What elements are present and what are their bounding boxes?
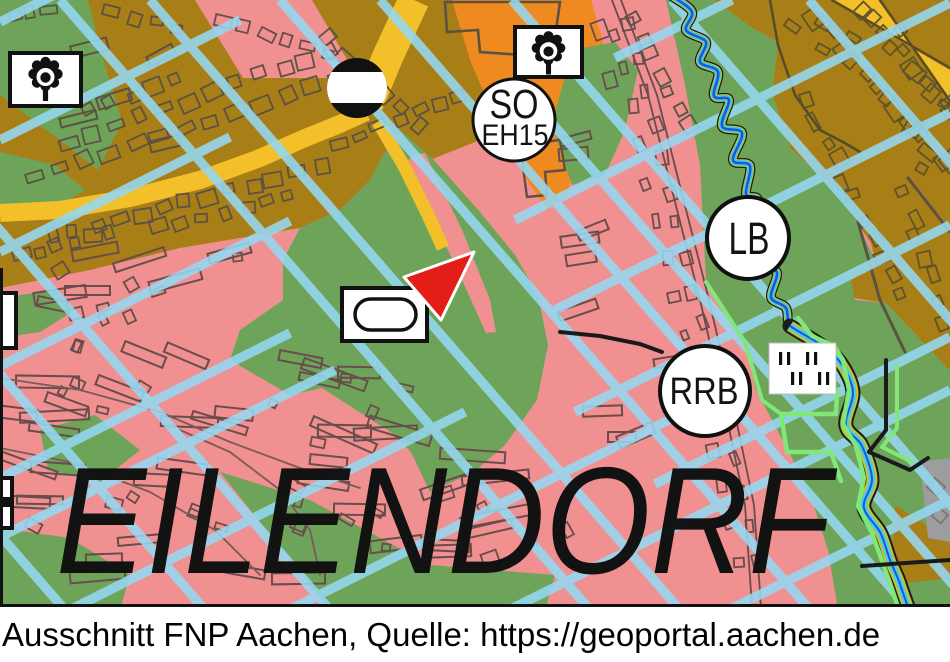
svg-text:EH15: EH15 [482, 119, 549, 152]
svg-text:Ausschnitt FNP Aachen, Quelle:: Ausschnitt FNP Aachen, Quelle: https://g… [2, 616, 880, 653]
svg-text:RRB: RRB [670, 371, 739, 413]
svg-text:LB: LB [729, 213, 770, 264]
svg-text:EILENDORF: EILENDORF [56, 436, 837, 606]
